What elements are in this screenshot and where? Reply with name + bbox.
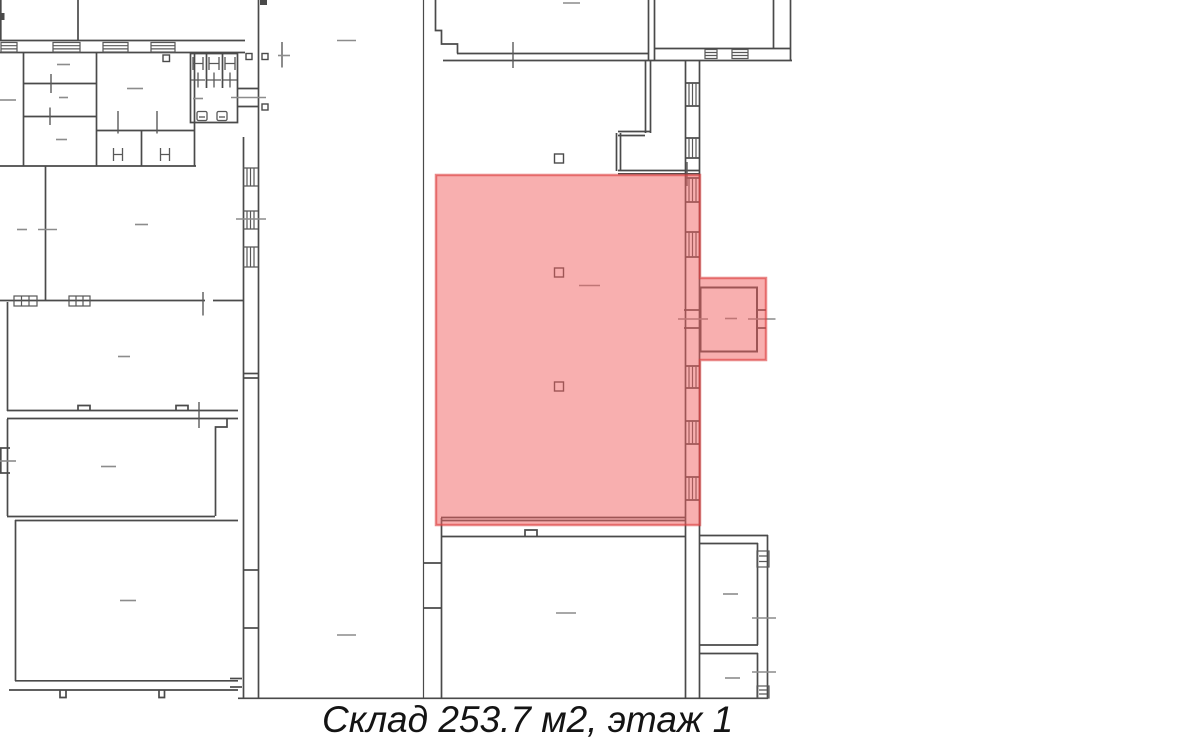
plan-caption: Склад 253.7 м2, этаж 1 [322,699,882,741]
warehouse-highlight-area[interactable] [436,175,766,525]
plumbing-fixtures [114,57,238,161]
floor-plan-page: Склад 253.7 м2, этаж 1 [0,0,1200,745]
floor-plan [0,0,1200,745]
